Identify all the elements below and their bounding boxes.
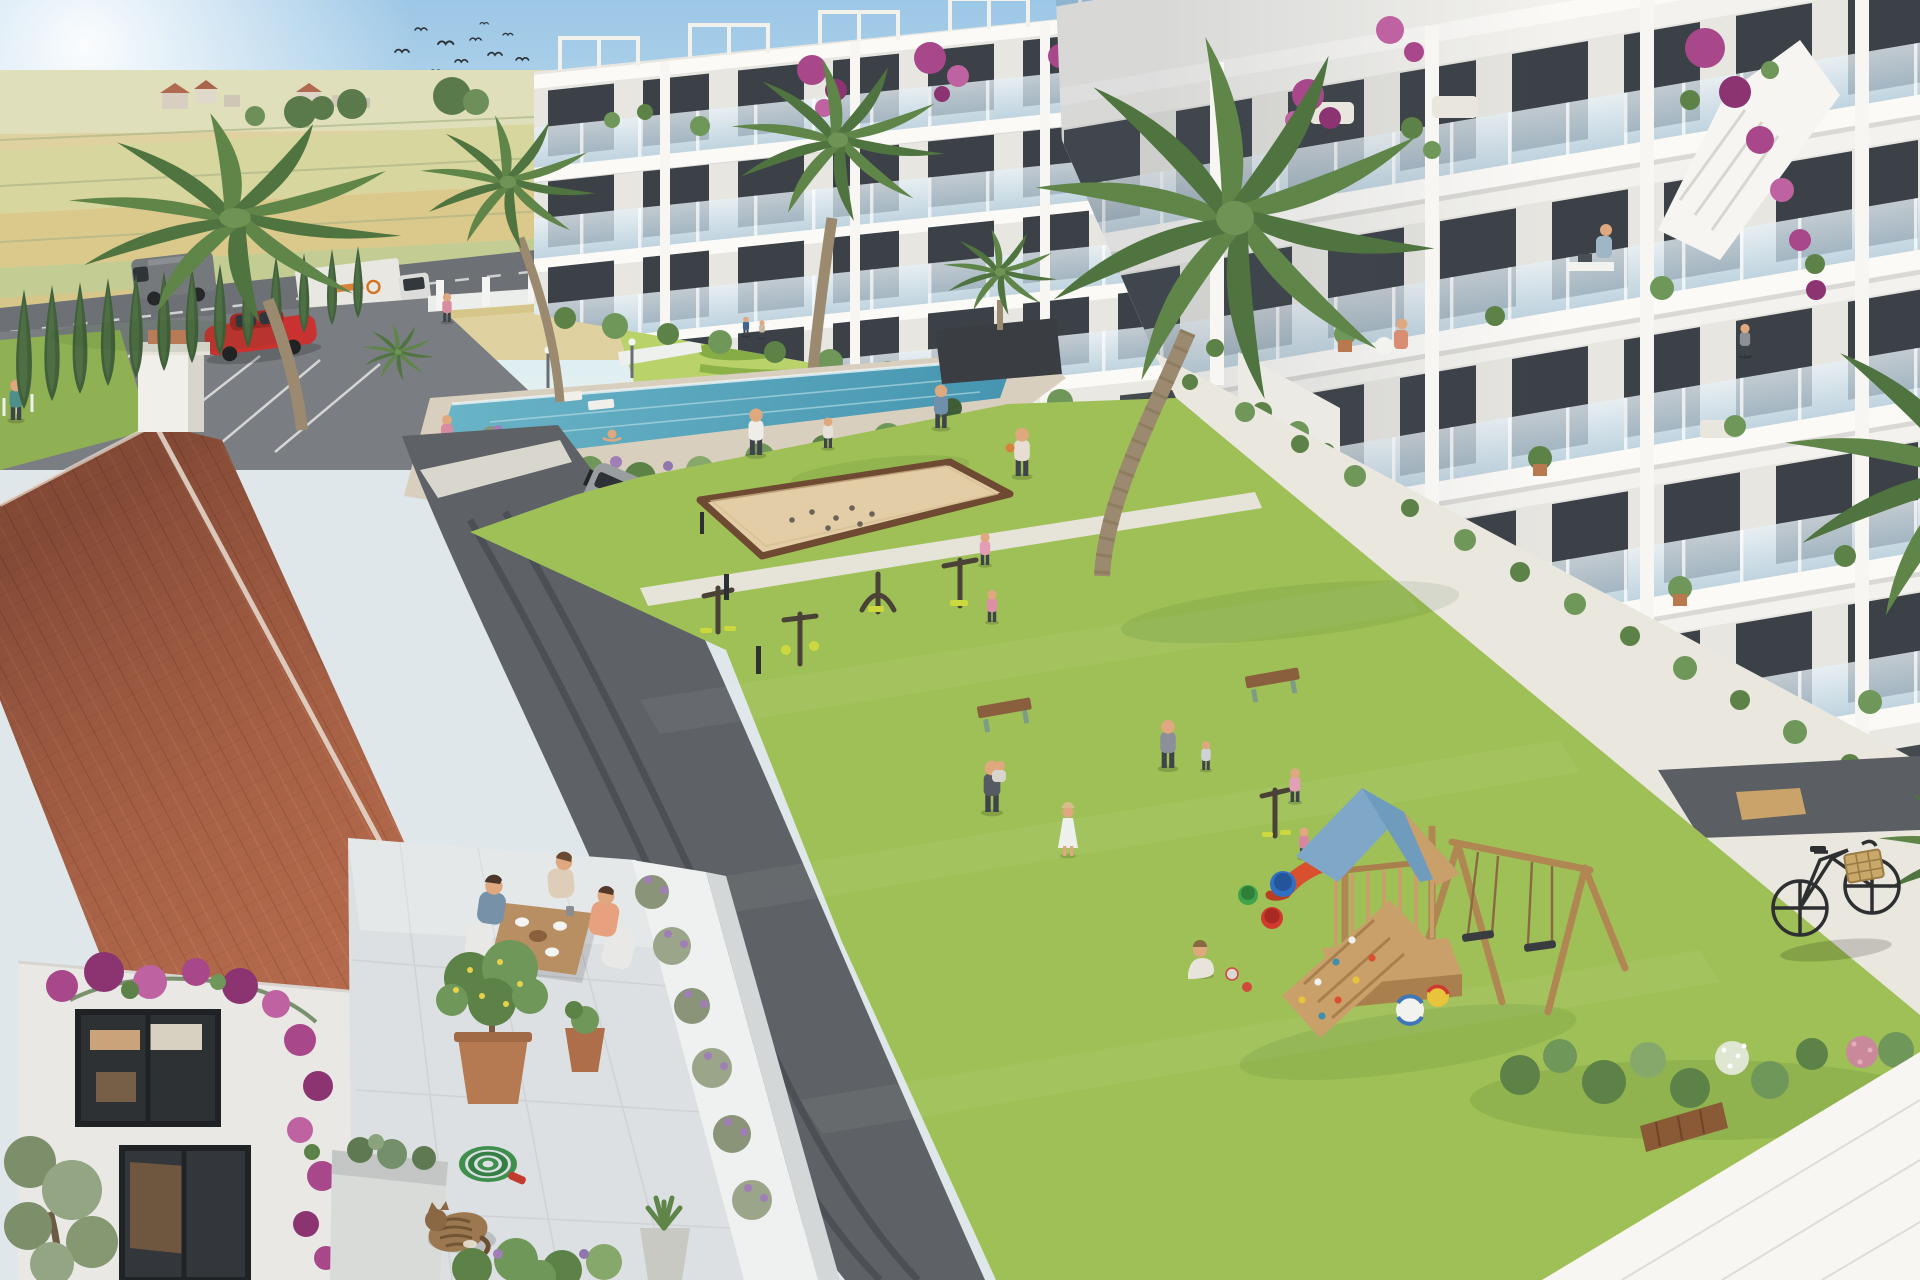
beach-ball [1396, 996, 1424, 1024]
render-image [0, 0, 1920, 1280]
bread-basket [529, 930, 547, 942]
yellow-ball [1427, 985, 1449, 1007]
patio-door [122, 1148, 248, 1280]
kitchen-window [78, 1012, 218, 1124]
